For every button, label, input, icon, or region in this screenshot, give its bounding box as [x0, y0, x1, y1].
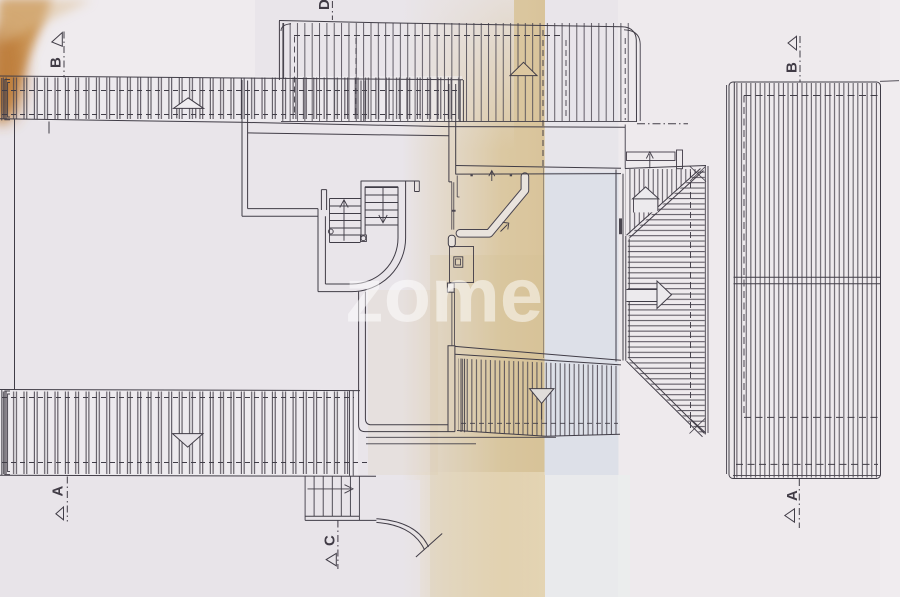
svg-text:A: A: [784, 490, 801, 501]
svg-text:B: B: [784, 62, 801, 73]
svg-text:C: C: [322, 535, 339, 546]
svg-text:A: A: [50, 486, 67, 497]
svg-text:zome: zome: [345, 253, 543, 339]
svg-text:B: B: [48, 57, 65, 68]
svg-text:D: D: [316, 0, 333, 10]
